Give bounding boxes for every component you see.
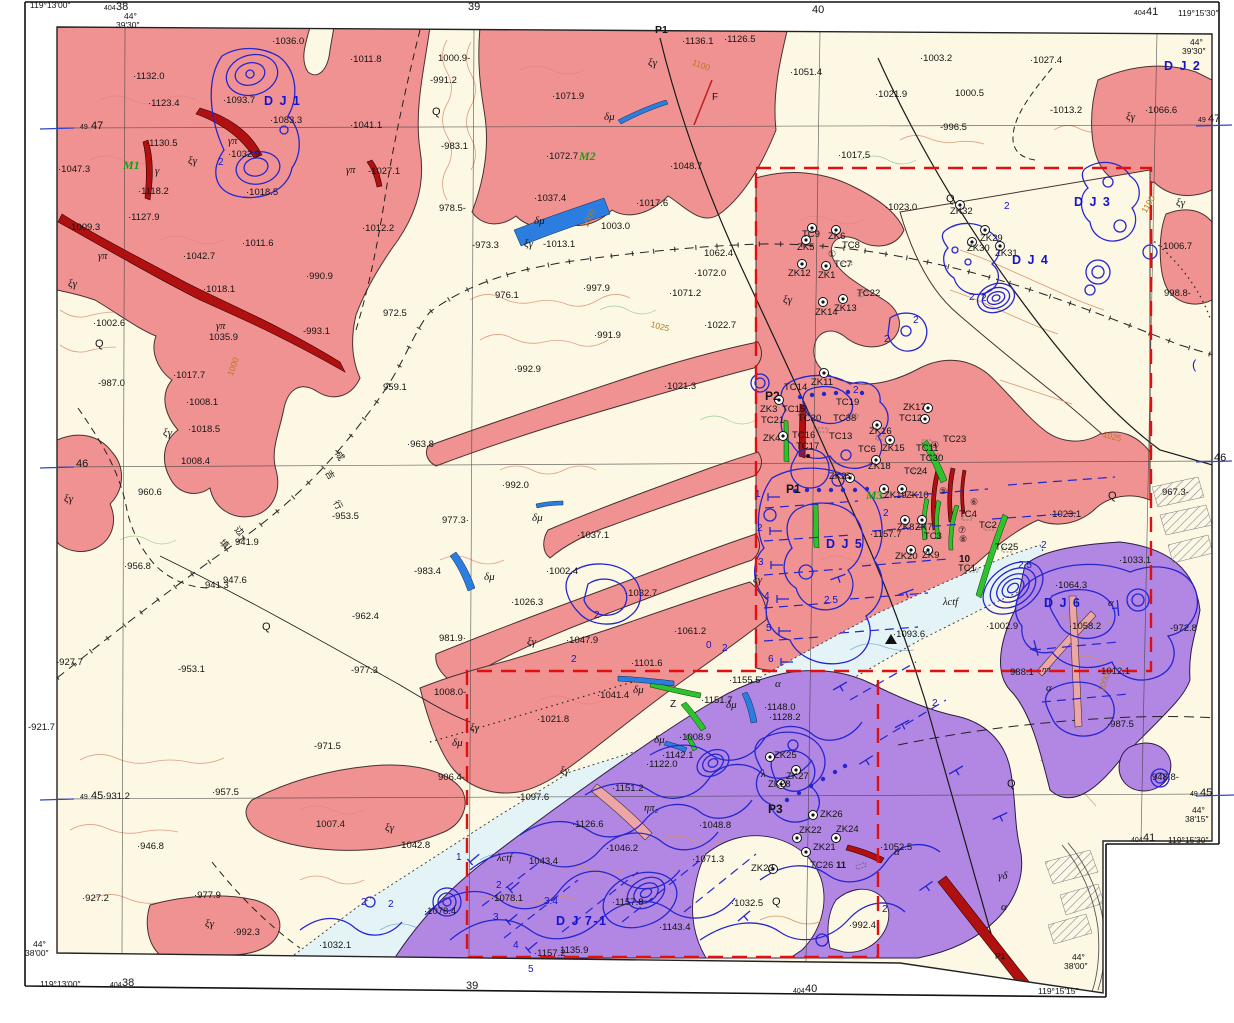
point-marker [806, 454, 810, 458]
map-content [0, 0, 1234, 1023]
map-graphics [0, 0, 1234, 1023]
page: { "palette":{"pink":"#f19292","purple":"… [0, 0, 1234, 1023]
geological-map: 119°13′00″40438394040441119°15′30″44°39′… [0, 0, 1234, 1023]
